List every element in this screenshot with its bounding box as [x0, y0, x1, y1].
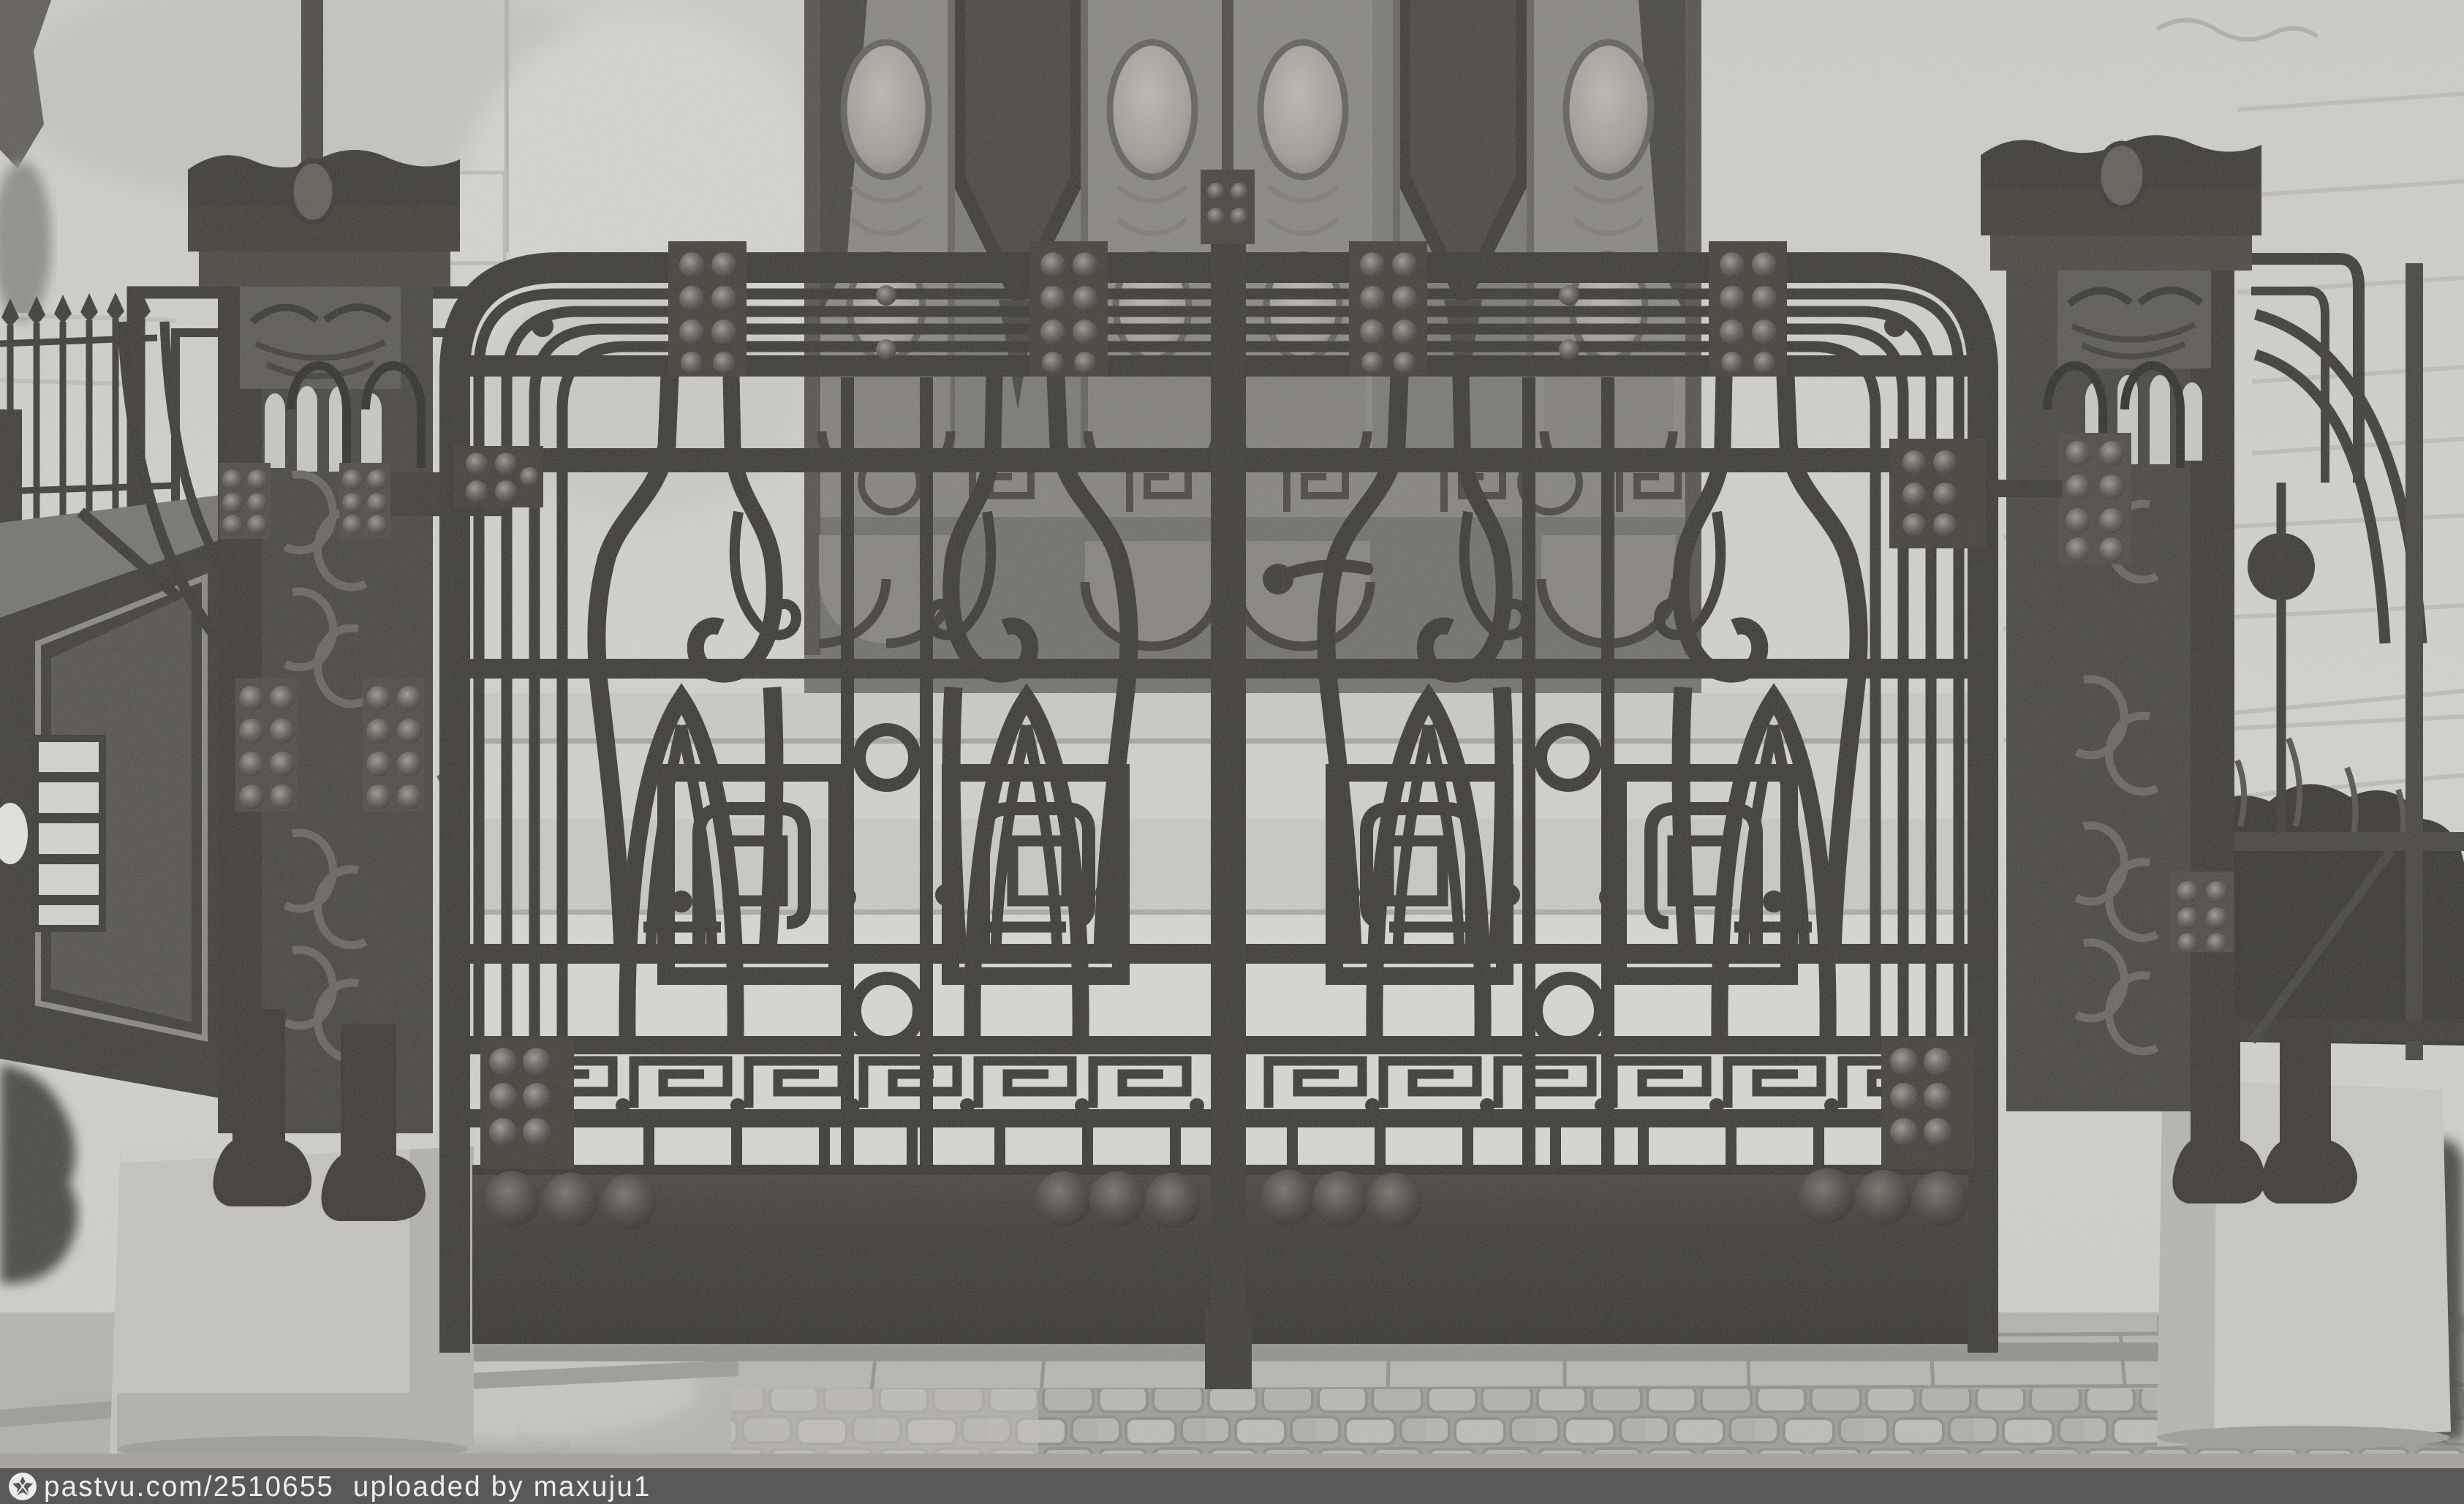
svg-text:pastvu.com/2510655 uploaded b: pastvu.com/2510655 uploaded by maxuju1: [44, 1471, 651, 1503]
